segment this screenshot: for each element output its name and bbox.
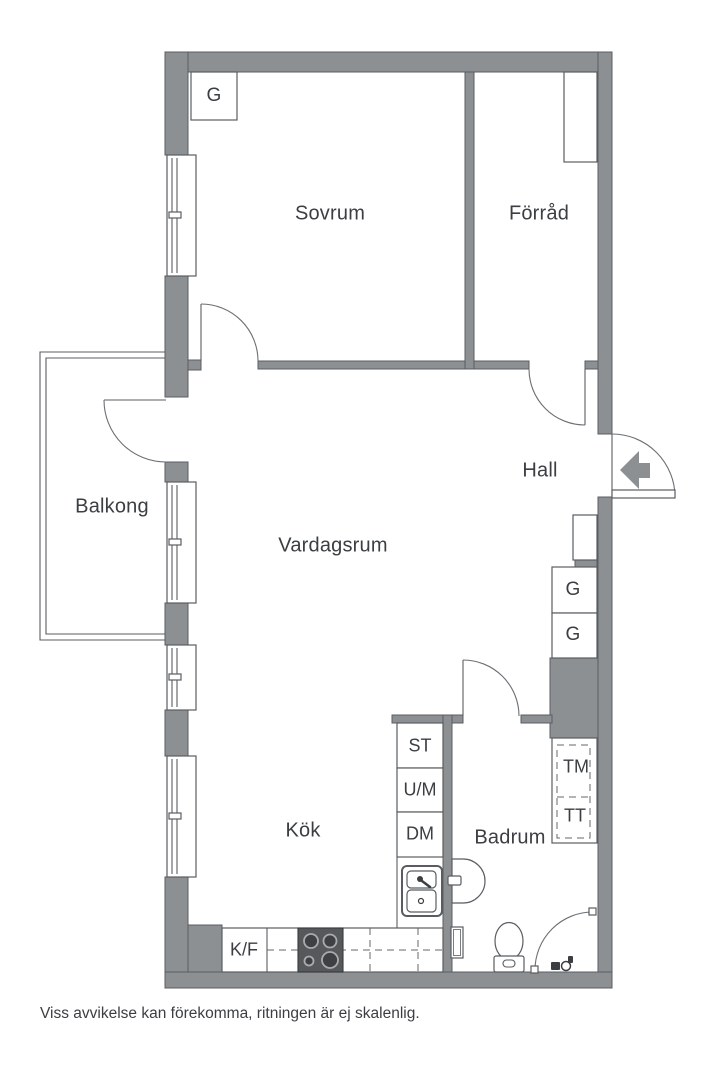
wall-sovrum-forrad: [465, 72, 474, 369]
label-wardrobe-sovrum: G: [207, 85, 222, 107]
kitchen-sink: [402, 866, 442, 916]
room-label-hall: Hall: [522, 460, 557, 483]
floor-plan: Sovrum Förråd Hall Vardagsrum Balkong Kö…: [0, 0, 720, 1080]
wall-bottom: [165, 972, 612, 988]
label-tumble-dryer: TT: [564, 806, 586, 827]
windows: [167, 155, 196, 877]
hall-niche-box: [573, 515, 597, 560]
wall-stub-left: [188, 360, 201, 370]
wall-sliver: [575, 560, 597, 567]
closets: [191, 72, 597, 843]
wall-left-seg5: [165, 710, 188, 756]
room-label-sovrum: Sovrum: [295, 203, 365, 226]
burner-icon: [322, 952, 338, 968]
bathroom-fixtures: [448, 859, 596, 973]
door-balkong: [104, 400, 166, 462]
label-oven-micro: U/M: [404, 780, 437, 801]
wall-left-seg3: [165, 462, 188, 482]
label-wardrobe-hall-upper: G: [566, 579, 581, 601]
wall-left-seg2: [165, 276, 188, 397]
door-sovrum: [201, 304, 258, 361]
burner-icon: [304, 934, 318, 948]
wall-left-seg4: [165, 603, 188, 645]
label-fridge-freezer: K/F: [230, 940, 258, 961]
wall-top: [165, 52, 612, 72]
room-label-balkong: Balkong: [75, 496, 149, 519]
room-label-kok: Kök: [285, 820, 320, 843]
wall-left-seg1: [165, 52, 188, 155]
label-cleaning-cabinet: ST: [408, 736, 431, 757]
wall-badrum-top-right: [521, 715, 552, 723]
room-label-forrad: Förråd: [509, 203, 569, 226]
door-forrad: [529, 369, 585, 425]
window-kok: [167, 756, 196, 877]
wall-sovrum-vardagsrum: [258, 361, 529, 369]
wall-shaft: [550, 658, 598, 738]
window-sovrum: [167, 155, 196, 276]
room-label-badrum: Badrum: [474, 827, 545, 850]
door-entrance: [612, 434, 675, 498]
wall-left-seg6: [165, 877, 188, 972]
label-wardrobe-hall-lower: G: [566, 624, 581, 646]
laundry-niche: [552, 738, 597, 843]
wall-right-lower: [598, 497, 612, 972]
shower-mixer-icon: [551, 962, 560, 970]
wall-left-corner-block: [188, 925, 222, 972]
entrance-door-leaf: [612, 490, 675, 498]
wall-stub-right: [585, 361, 598, 369]
room-label-vardagsrum: Vardagsrum: [278, 535, 387, 558]
window-vardagsrum-1: [167, 482, 196, 603]
burner-icon: [305, 957, 314, 966]
window-vardagsrum-2: [167, 645, 196, 710]
label-dishwasher: DM: [406, 824, 434, 845]
label-washing-machine: TM: [563, 757, 589, 778]
stove: [298, 928, 343, 972]
disclaimer-text: Viss avvikelse kan förekomma, ritningen …: [40, 1005, 420, 1023]
basin-tap-icon: [448, 876, 461, 885]
entrance-arrow-icon: [620, 451, 650, 489]
shower-icon: [531, 908, 596, 973]
radiator-icon: [451, 927, 463, 958]
wall-right-upper: [598, 52, 612, 434]
burner-icon: [324, 935, 337, 948]
toilet-icon: [494, 923, 524, 973]
forrad-shelf-box: [564, 72, 597, 162]
door-badrum: [463, 660, 519, 716]
